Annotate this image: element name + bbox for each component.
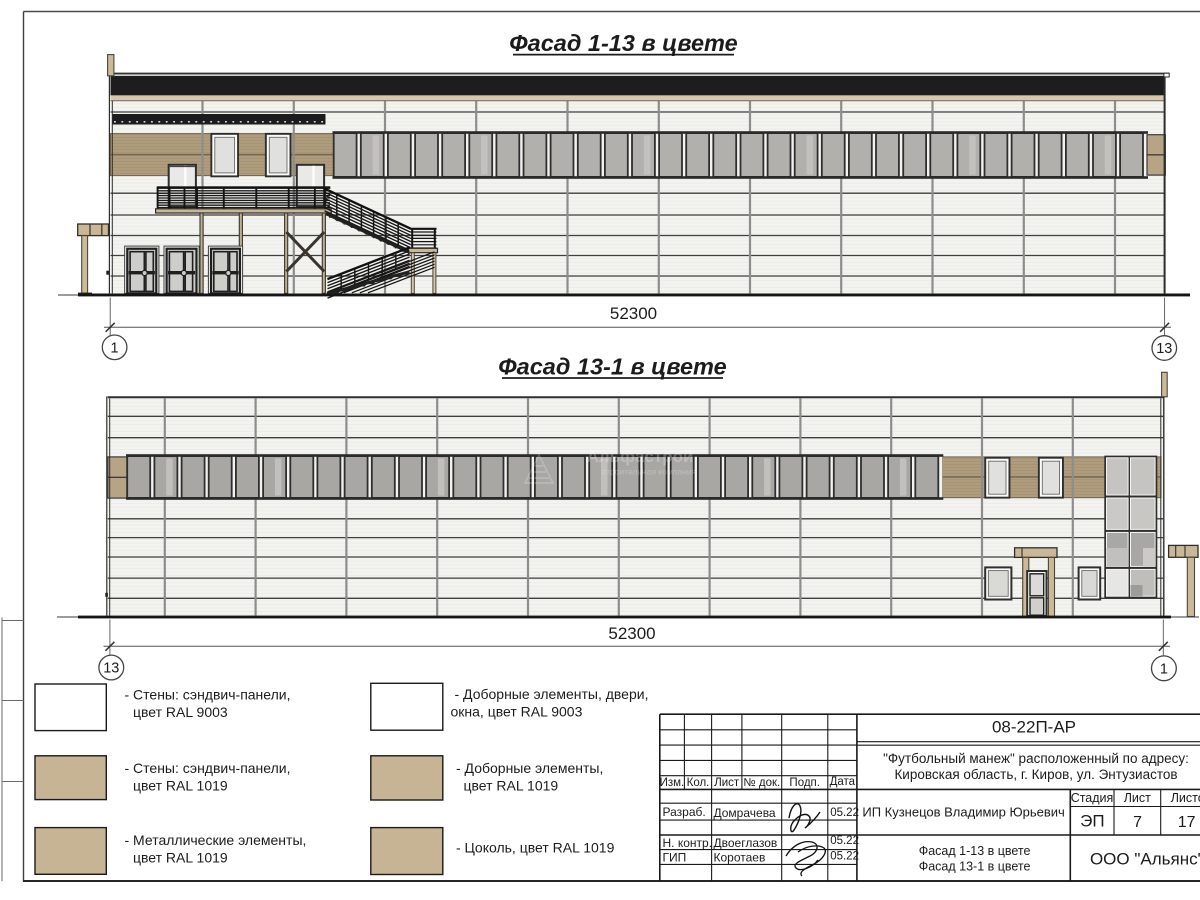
svg-text:Альфастрой: Альфастрой (587, 447, 694, 466)
svg-text:Кировская область, г. Киров, у: Кировская область, г. Киров, ул. Энтузиа… (894, 767, 1177, 782)
svg-text:Коротаев: Коротаев (714, 851, 766, 865)
svg-text:Двоеглазов: Двоеглазов (714, 836, 778, 850)
svg-text:Подп.: Подп. (789, 777, 820, 789)
svg-text:Н. контр.: Н. контр. (663, 836, 713, 850)
svg-text:17: 17 (1178, 814, 1196, 831)
svg-text:Кол.: Кол. (687, 777, 710, 789)
svg-text:Дата: Дата (830, 776, 856, 788)
svg-text:ИП Кузнецов Владимир Юрьевич: ИП Кузнецов Владимир Юрьевич (862, 805, 1064, 820)
svg-text:Стадия: Стадия (1071, 791, 1114, 805)
svg-text:1: 1 (111, 340, 119, 356)
svg-text:Изм.: Изм. (660, 777, 685, 789)
svg-text:Фасад 13-1 в цвете: Фасад 13-1 в цвете (498, 354, 726, 380)
svg-text:Лист: Лист (714, 777, 740, 789)
svg-text:52300: 52300 (608, 624, 655, 643)
svg-text:05.22: 05.22 (830, 807, 859, 819)
svg-text:цвет RAL 1019: цвет RAL 1019 (133, 850, 228, 866)
svg-text:Фасад 1-13 в цвете: Фасад 1-13 в цвете (509, 30, 737, 56)
svg-text:05.22: 05.22 (830, 835, 859, 847)
svg-text:ООО "Альянс": ООО "Альянс" (1090, 850, 1200, 869)
svg-text:Фасад 13-1 в цвете: Фасад 13-1 в цвете (919, 860, 1031, 874)
svg-text:окна, цвет RAL 9003: окна, цвет RAL 9003 (451, 704, 583, 720)
svg-text:52300: 52300 (610, 304, 657, 323)
svg-text:Домрачева: Домрачева (714, 806, 776, 820)
svg-text:13: 13 (103, 661, 119, 677)
svg-text:- Стены: сэндвич-панели,: - Стены: сэндвич-панели, (125, 760, 291, 776)
svg-text:цвет RAL 1019: цвет RAL 1019 (464, 778, 559, 794)
svg-text:"Футбольный манеж" расположенн: "Футбольный манеж" расположенный по адре… (883, 751, 1189, 766)
svg-text:7: 7 (1133, 814, 1142, 831)
svg-text:Лист: Лист (1124, 791, 1151, 805)
svg-text:цвет RAL 1019: цвет RAL 1019 (133, 778, 228, 794)
svg-text:цвет RAL 9003: цвет RAL 9003 (133, 704, 228, 720)
svg-text:- Металлические элементы,: - Металлические элементы, (125, 832, 307, 848)
svg-text:Разраб.: Разраб. (663, 805, 706, 819)
svg-text:1: 1 (1160, 661, 1168, 677)
svg-text:- Цоколь, цвет RAL 1019: - Цоколь, цвет RAL 1019 (456, 840, 615, 856)
svg-text:- Доборные элементы, двери,: - Доборные элементы, двери, (455, 686, 649, 702)
svg-text:ЭП: ЭП (1080, 812, 1104, 831)
svg-text:- Доборные элементы,: - Доборные элементы, (456, 760, 603, 776)
svg-text:13: 13 (1156, 341, 1172, 357)
svg-text:08-22П-АР: 08-22П-АР (992, 718, 1076, 737)
svg-text:ГИП: ГИП (663, 851, 687, 865)
svg-text:- Стены: сэндвич-панели,: - Стены: сэндвич-панели, (125, 687, 291, 703)
svg-text:Листов: Листов (1171, 791, 1200, 805)
svg-text:№ док.: № док. (743, 777, 780, 789)
svg-text:строительная компания: строительная компания (602, 467, 697, 477)
svg-text:05.22: 05.22 (830, 851, 859, 863)
svg-text:Фасад 1-13 в цвете: Фасад 1-13 в цвете (919, 844, 1031, 858)
